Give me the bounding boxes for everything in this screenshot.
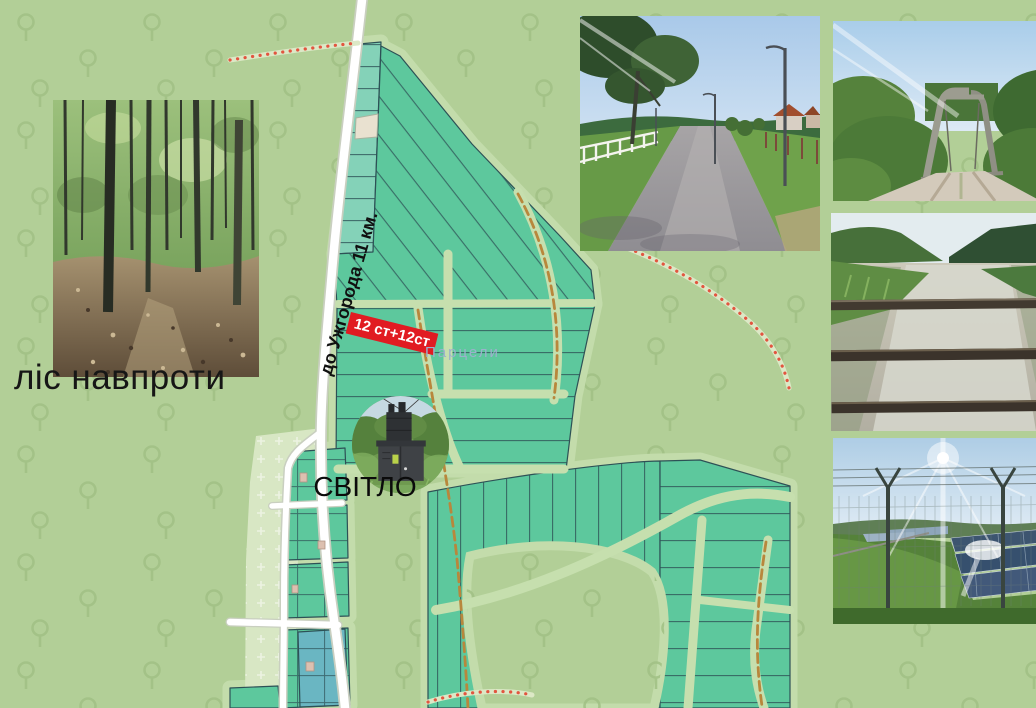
street-photo xyxy=(580,16,820,251)
canal-photo xyxy=(831,213,1036,431)
forest-photo xyxy=(53,100,259,377)
solar-photo xyxy=(833,438,1036,624)
bridge-photo xyxy=(833,21,1036,201)
electricity-caption: СВІТЛО xyxy=(303,471,427,503)
land-sale-collage: до Ужгорода 11 км. 12 ст+12ст Парцели СВ… xyxy=(0,0,1036,708)
map-area-label: Парцели xyxy=(425,344,500,361)
forest-caption: ліс навпроти xyxy=(14,358,226,398)
